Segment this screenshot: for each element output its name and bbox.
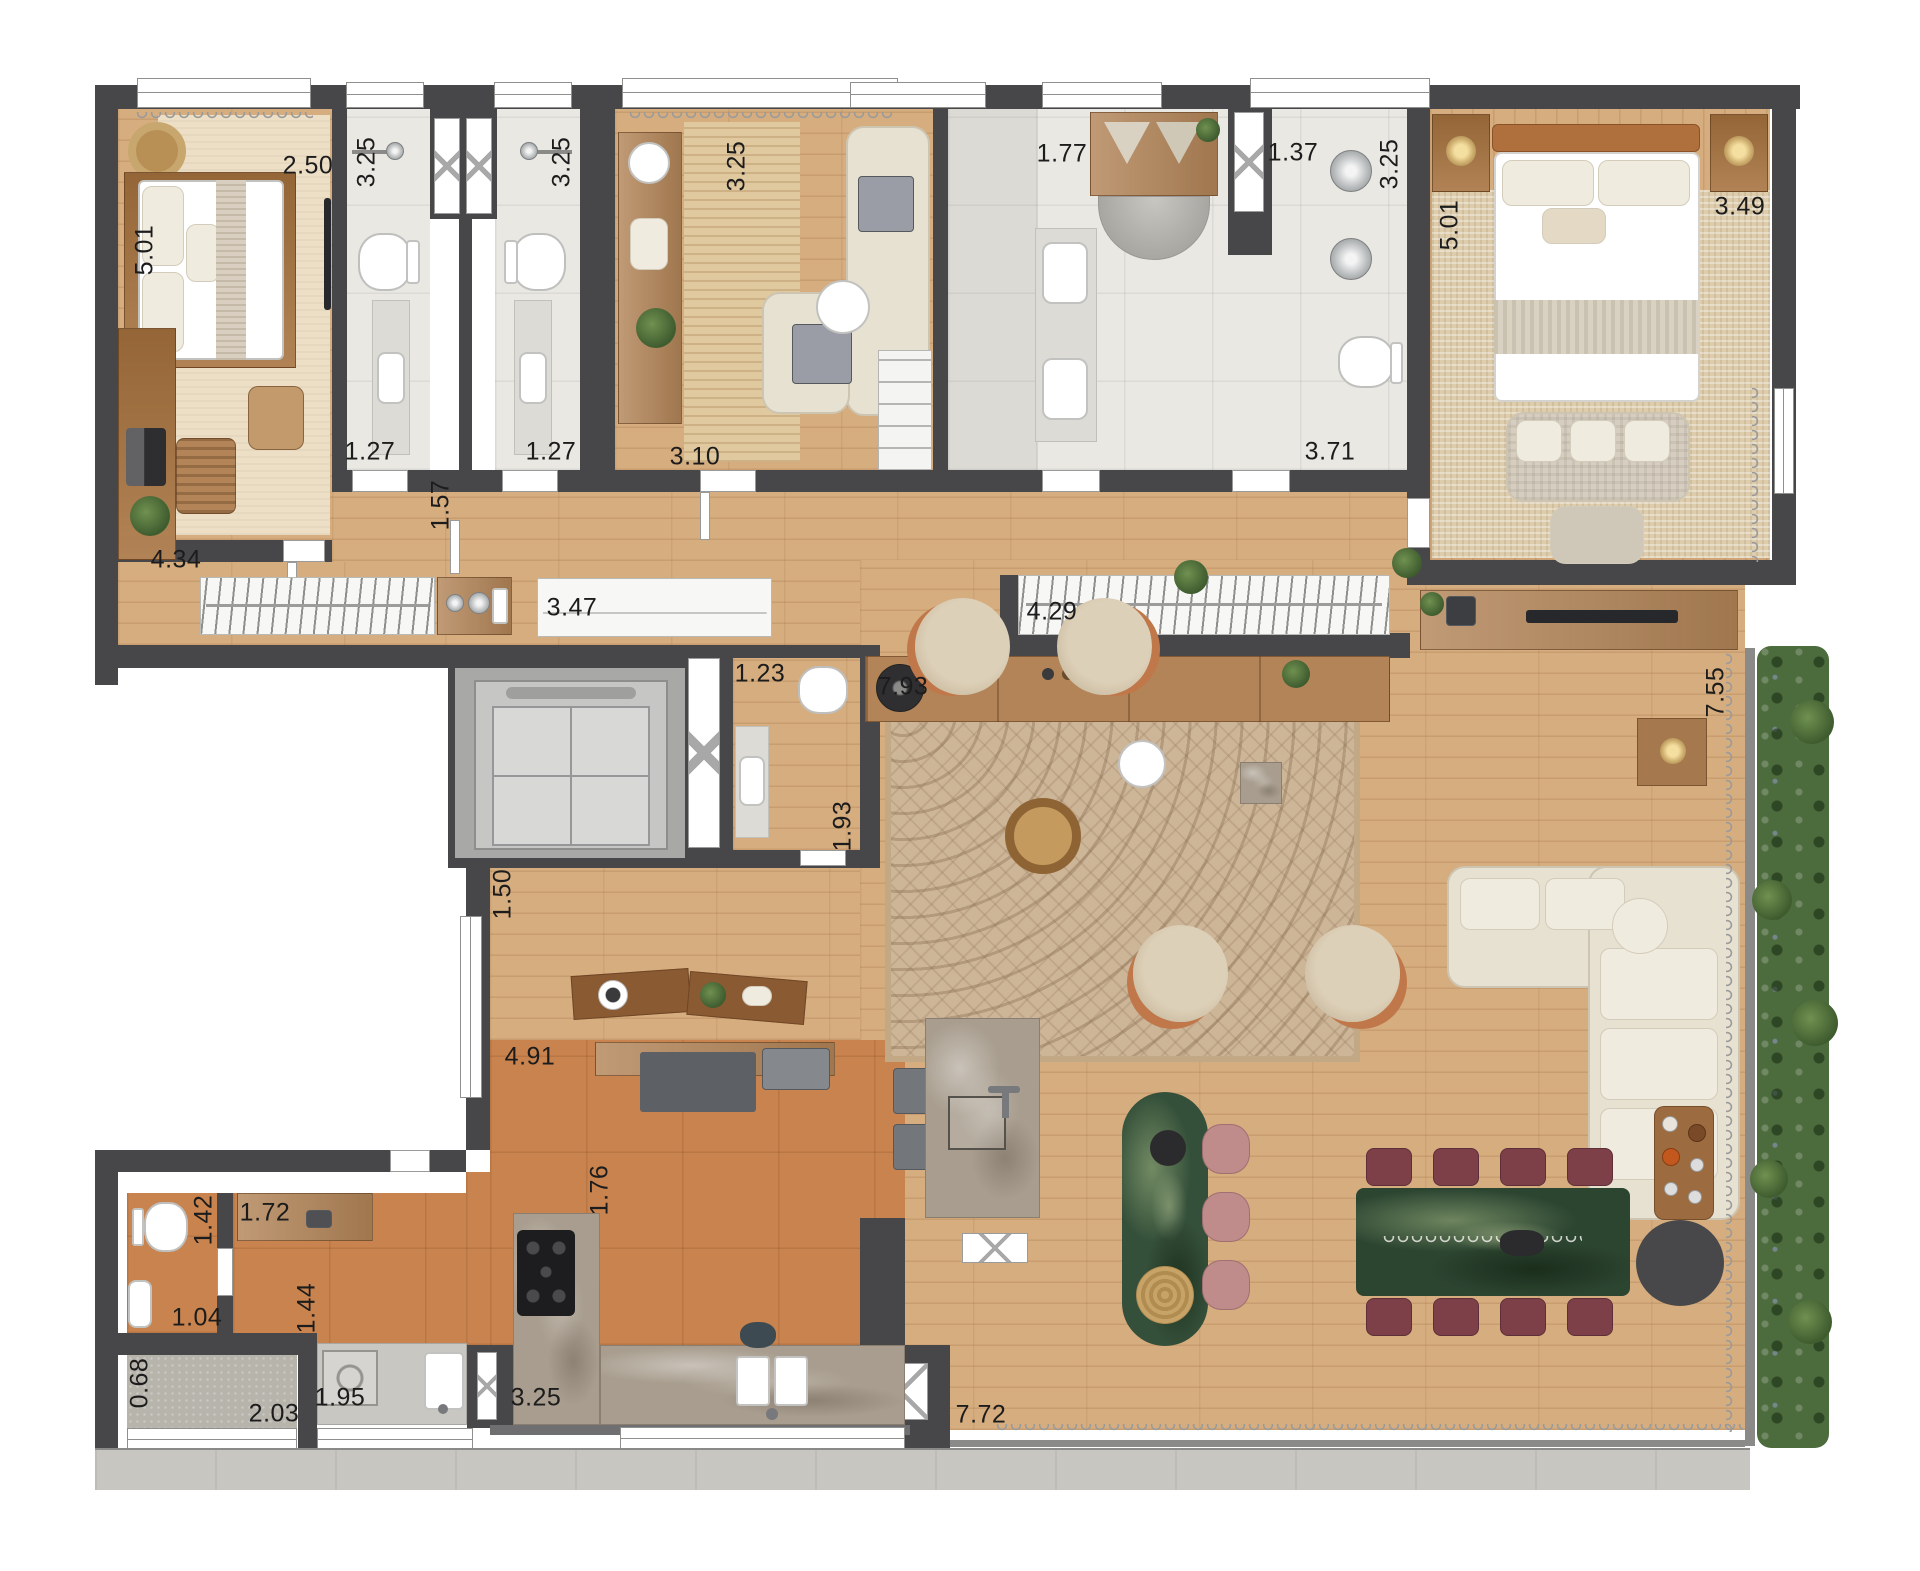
- kitchen-cabinet: [762, 1048, 830, 1090]
- rattan-tray: [1136, 1266, 1194, 1324]
- bench-item: [306, 1210, 332, 1228]
- wall-kitchen-living: [860, 1218, 905, 1345]
- bed1-runner: [216, 180, 246, 360]
- toilet-tank-mbath: [1390, 342, 1403, 384]
- kitchen-pot: [740, 1322, 776, 1348]
- dimension-label: 3.47: [547, 594, 598, 623]
- dining-chair: [1567, 1148, 1613, 1186]
- dimension-label: 4.34: [151, 546, 202, 575]
- dimension-label: 1.50: [489, 869, 518, 920]
- vent-shaft-laundry: [477, 1352, 497, 1420]
- sofa-cushion: [1600, 948, 1718, 1020]
- dining-chair: [1567, 1298, 1613, 1336]
- dimension-label: 1.27: [526, 438, 577, 467]
- cooktop: [517, 1230, 575, 1316]
- shower-head-bath1: [386, 142, 404, 160]
- coffee-table: [1005, 798, 1081, 874]
- bar-glass: [1688, 1190, 1702, 1204]
- dimension-label: 1.93: [829, 801, 858, 852]
- armchair: [915, 598, 1010, 695]
- curtain-living-south: [995, 1424, 1743, 1434]
- tv-bedroom-1: [324, 198, 331, 310]
- mbath-sink-1: [1042, 242, 1088, 304]
- plant-study: [636, 308, 676, 348]
- closet-rod-1: [206, 604, 429, 607]
- vent-shaft-baths-1: [434, 118, 460, 214]
- armchair: [1133, 925, 1228, 1022]
- dimension-label: 1.27: [345, 438, 396, 467]
- dark-dish: [1150, 1130, 1186, 1166]
- dimension-label: 1.37: [1268, 139, 1319, 168]
- table-squiggle-decor: [1382, 1236, 1582, 1246]
- toilet-lavabo: [798, 666, 848, 714]
- vent-shaft-baths-2: [466, 118, 492, 214]
- dimension-label: 1.76: [586, 1165, 615, 1216]
- mbath-sink-2: [1042, 358, 1088, 420]
- garden-blob: [1792, 1000, 1838, 1046]
- laptop: [126, 428, 166, 486]
- rail-living-south: [950, 1440, 1745, 1447]
- wall-study-mbath: [933, 107, 948, 492]
- plant-sideboard: [1282, 660, 1310, 688]
- wing-door: [390, 1150, 430, 1172]
- wall-between-baths: [459, 219, 472, 492]
- sofa-round-pillow: [1612, 898, 1668, 954]
- window-mbed-east: [1774, 388, 1794, 494]
- study-door-leaf: [700, 492, 710, 540]
- window-master-bedroom: [1250, 78, 1430, 108]
- dimension-label: 1.23: [735, 660, 786, 689]
- cabinet-lamp: [1660, 738, 1686, 764]
- kitchen-sink-right: [774, 1356, 808, 1406]
- dimension-label: 5.01: [1436, 200, 1465, 251]
- plant-closet-end: [1392, 548, 1422, 578]
- mbed-blanket: [1494, 300, 1700, 354]
- dining-chair: [1433, 1298, 1479, 1336]
- dimension-label: 2.03: [249, 1400, 300, 1429]
- tv-kitchen: [640, 1052, 756, 1112]
- dining-side-chair: [1202, 1192, 1250, 1242]
- wall-wing-left: [95, 1150, 118, 1450]
- dimension-label: 3.25: [548, 137, 577, 188]
- toilet-bath2: [512, 233, 566, 291]
- bar-glass: [1664, 1182, 1678, 1196]
- side-table-round: [1118, 740, 1166, 788]
- dimension-label: 3.25: [1376, 139, 1405, 190]
- desk-chair: [176, 438, 236, 514]
- bar-bottle: [1688, 1124, 1706, 1142]
- wall-bath2-study: [580, 107, 615, 492]
- entry-console-left: [571, 968, 692, 1020]
- dining-side-chair: [1202, 1124, 1250, 1174]
- curtain-mbed: [1752, 386, 1762, 562]
- dimension-label: 1.44: [293, 1283, 322, 1334]
- study-side-table: [816, 280, 870, 334]
- terrace-strip: [95, 1448, 1750, 1490]
- plant-console-ne: [1420, 592, 1444, 616]
- curtain-living-east: [1726, 652, 1736, 1432]
- window-mbath-1: [850, 82, 986, 108]
- dimension-label: 4.29: [1027, 598, 1078, 627]
- plant-hall: [1174, 560, 1208, 594]
- curtain-bedroom-1: [135, 112, 313, 122]
- dimension-label: 3.71: [1305, 438, 1356, 467]
- rail-living-east: [1745, 648, 1755, 1446]
- dining-chair: [1433, 1148, 1479, 1186]
- kitchen-faucet: [766, 1408, 778, 1420]
- mbed-pillow: [1502, 160, 1594, 206]
- mbed-headboard: [1492, 124, 1700, 152]
- sink-bath1: [377, 352, 405, 404]
- toilet-wc: [144, 1202, 188, 1252]
- dimension-label: 3.25: [723, 141, 752, 192]
- tv-living: [1526, 610, 1678, 623]
- mbed-pillow-small: [1542, 208, 1606, 244]
- curtain-study: [628, 112, 892, 122]
- wall-corridor-south: [118, 645, 448, 668]
- study-shelf: [878, 350, 932, 470]
- toilet-tank-bath2: [504, 240, 518, 284]
- bathroom-1-door: [352, 470, 408, 492]
- elevator-cab: [492, 706, 650, 846]
- dining-side-chair: [1202, 1260, 1250, 1310]
- dimension-label: 7.55: [1702, 667, 1731, 718]
- elevator-door-bar: [506, 687, 636, 699]
- study-decor: [630, 218, 668, 270]
- table-sculpture: [1500, 1230, 1544, 1256]
- sink-lavabo: [739, 756, 765, 806]
- garden-blob: [1750, 1160, 1788, 1198]
- dimension-label: 4.91: [505, 1043, 556, 1072]
- master-bedroom-door: [1407, 498, 1430, 548]
- sofa-cushion: [1600, 1028, 1718, 1100]
- garden-blob: [1788, 1300, 1832, 1344]
- wall-master-bedroom-right: [1772, 85, 1796, 585]
- round-side-pouf: [1636, 1220, 1724, 1306]
- toilet-tank-wc: [132, 1208, 144, 1246]
- console-tray: [492, 588, 508, 624]
- wall-left: [95, 85, 118, 685]
- bar-bottle: [1662, 1116, 1678, 1132]
- wall-wc-balcony: [118, 1333, 298, 1355]
- dimension-label: 1.42: [190, 1195, 219, 1246]
- dimension-label: 1.72: [240, 1199, 291, 1228]
- sofa-cushion: [1460, 878, 1540, 930]
- dining-chair: [1500, 1298, 1546, 1336]
- dimension-label: 3.25: [353, 137, 382, 188]
- toilet-bath1: [358, 233, 412, 291]
- island-faucet-stem: [1002, 1092, 1009, 1118]
- mbath-door-1: [1042, 470, 1100, 492]
- wall-bed1-bath1: [332, 107, 347, 492]
- plant-bedroom-1: [130, 496, 170, 536]
- sink-bath2: [519, 352, 547, 404]
- study-door: [700, 470, 756, 492]
- vent-shaft-island: [962, 1233, 1028, 1263]
- bar-bottle: [1662, 1148, 1680, 1166]
- dimension-label: 7.93: [878, 673, 929, 702]
- dining-chair: [1366, 1298, 1412, 1336]
- laundry-faucet: [438, 1404, 448, 1414]
- dimension-label: 1.77: [1037, 140, 1088, 169]
- dimension-label: 3.10: [670, 443, 721, 472]
- armchair: [1305, 925, 1400, 1022]
- bed1-stool: [248, 386, 304, 450]
- toilet-tank-bath1: [406, 240, 420, 284]
- dimension-label: 1.95: [315, 1384, 366, 1413]
- shower-head-bath2: [520, 142, 538, 160]
- window-bedroom-1: [137, 78, 311, 108]
- kitchen-sink-left: [736, 1356, 770, 1406]
- vent-shaft-mbath: [1234, 112, 1264, 212]
- garden-blob: [1752, 880, 1792, 920]
- dimension-label: 3.25: [511, 1384, 562, 1413]
- bar-glass: [1690, 1158, 1704, 1172]
- bathroom-2-door: [502, 470, 558, 492]
- wc-door: [217, 1248, 233, 1296]
- laundry-sink: [424, 1352, 464, 1410]
- bench-pillow: [1624, 420, 1670, 462]
- console-board: [742, 986, 772, 1006]
- bench-pillow: [1516, 420, 1562, 462]
- dining-chair: [1500, 1148, 1546, 1186]
- dimension-label: 2.50: [283, 152, 334, 181]
- lamp-left: [1446, 136, 1476, 166]
- sink-wc: [128, 1280, 152, 1328]
- mbed-pouf: [1550, 506, 1644, 564]
- bench-pillow: [1570, 420, 1616, 462]
- garden-blob: [1790, 700, 1834, 744]
- plant-mbath: [1196, 118, 1220, 142]
- window-bathroom-1: [346, 82, 424, 108]
- window-mbath-2: [1042, 82, 1162, 108]
- plant-console: [700, 982, 726, 1008]
- floor-plan: 2.50 5.01 4.34 3.25 1.27 3.25 1.27 3.25 …: [0, 0, 1920, 1571]
- toilet-mbath: [1338, 336, 1394, 388]
- mbath-door-2: [1232, 470, 1290, 492]
- bedroom-1-door: [283, 540, 325, 562]
- study-mirror: [628, 142, 670, 184]
- console-decor: [468, 592, 490, 614]
- dimension-label: 0.68: [126, 1358, 155, 1409]
- study-cushion: [858, 176, 914, 232]
- kitchen-west-strip: [466, 1172, 490, 1345]
- dining-chair: [1366, 1148, 1412, 1186]
- living-room-rug: [885, 690, 1360, 1062]
- master-bathroom-shower-strip: [948, 107, 1038, 470]
- speaker: [1446, 596, 1476, 626]
- mbed-pillow: [1598, 160, 1690, 206]
- sideboard-knob: [1042, 668, 1054, 680]
- lavabo-door: [800, 850, 846, 866]
- rain-shower-1: [1330, 150, 1372, 192]
- vent-shaft-hall: [688, 658, 720, 848]
- dimension-label: 7.72: [956, 1401, 1007, 1430]
- marble-cube: [1240, 762, 1282, 804]
- dimension-label: 1.57: [427, 480, 456, 531]
- window-bathroom-2: [494, 82, 572, 108]
- bed1-pillow: [186, 224, 220, 282]
- lamp-right: [1724, 136, 1754, 166]
- window-kitchen-west: [460, 916, 482, 1098]
- cup-decor: [598, 980, 628, 1010]
- rain-shower-2: [1330, 238, 1372, 280]
- island-sink: [948, 1096, 1006, 1150]
- dimension-label: 1.04: [172, 1304, 223, 1333]
- dimension-label: 3.49: [1715, 193, 1766, 222]
- dimension-label: 5.01: [131, 225, 160, 276]
- console-decor: [446, 594, 464, 612]
